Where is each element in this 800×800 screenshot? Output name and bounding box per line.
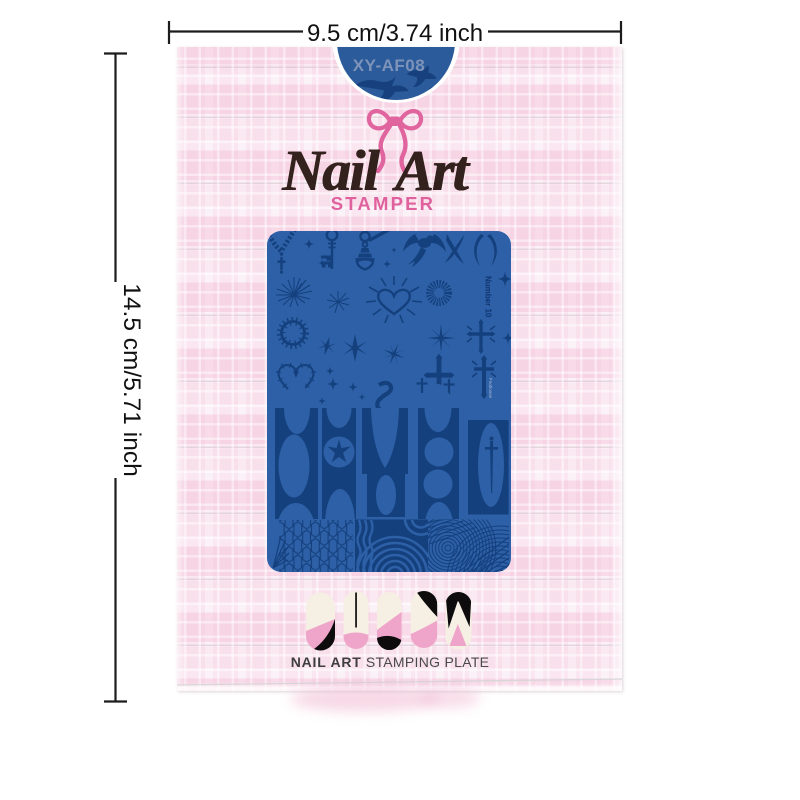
svg-text:9.5 cm/3.74 inch: 9.5 cm/3.74 inch: [307, 20, 483, 47]
svg-text:Footloose: Footloose: [488, 378, 493, 399]
svg-text:Number 10: Number 10: [484, 276, 493, 318]
svg-text:14.5 cm/5.71 inch: 14.5 cm/5.71 inch: [118, 283, 145, 476]
